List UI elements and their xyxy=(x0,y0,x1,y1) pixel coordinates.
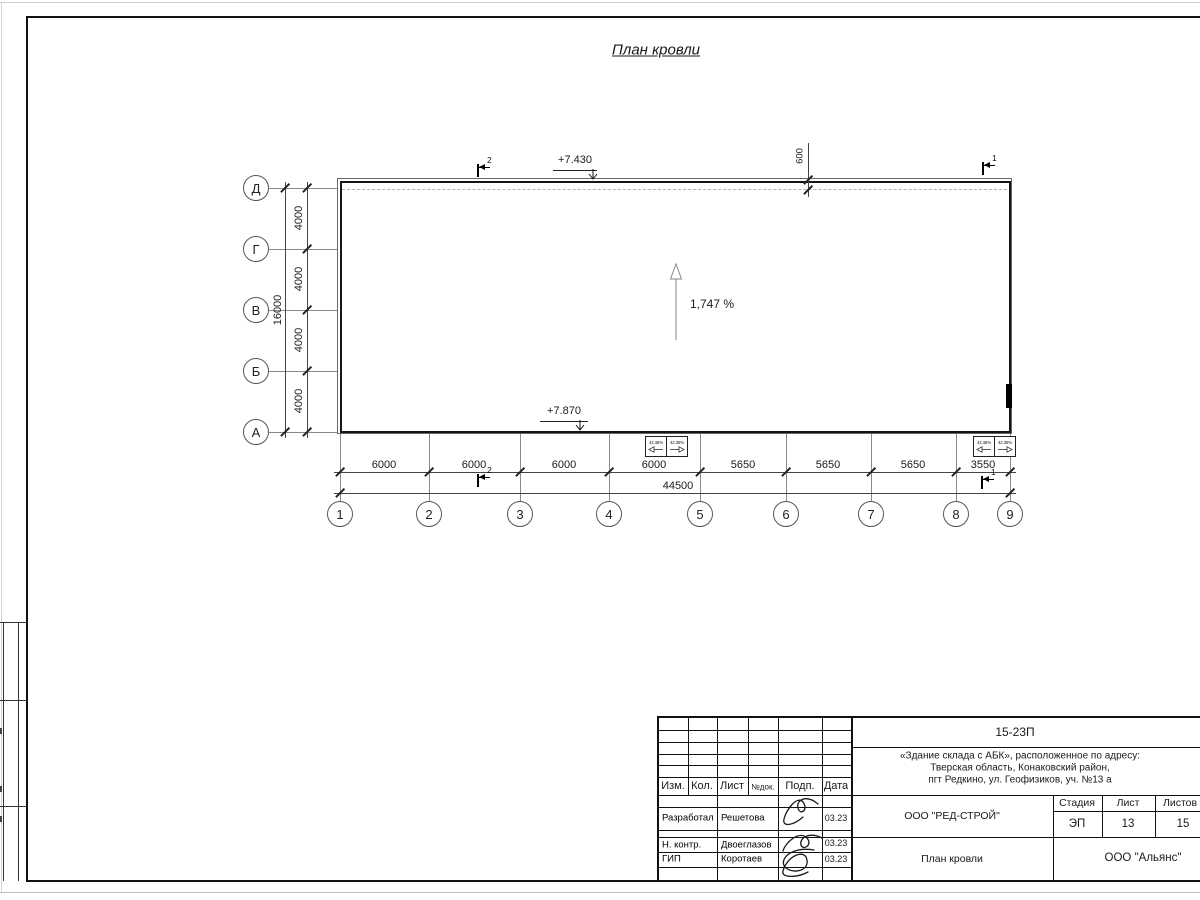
axis-label: 8 xyxy=(952,507,959,522)
axis-bubble-col: 4 xyxy=(596,501,622,527)
drain-arrow-left-icon xyxy=(976,446,992,453)
axis-label: 7 xyxy=(867,507,874,522)
axis-label: Г xyxy=(252,242,259,257)
axis-grid-line xyxy=(429,434,430,501)
drain-cell: 42.38% xyxy=(667,437,687,456)
section-arrow-icon xyxy=(479,474,485,480)
stamp-role: Н. контр. xyxy=(662,840,701,851)
axis-bubble-col: 5 xyxy=(687,501,713,527)
axis-label: Д xyxy=(252,181,261,196)
dimension-line xyxy=(334,493,1016,494)
elevation-value: +7.430 xyxy=(558,154,592,166)
ladder-mark xyxy=(1006,384,1012,408)
axis-label: 2 xyxy=(425,507,432,522)
section-arrow-icon xyxy=(983,476,989,482)
axis-label: 3 xyxy=(516,507,523,522)
stamp-line xyxy=(659,742,851,743)
stamp-name: Решетова xyxy=(721,813,765,824)
stamp-stage-value: ЭП xyxy=(1069,818,1086,830)
axis-label: 4 xyxy=(605,507,612,522)
drain-arrow-right-icon xyxy=(997,446,1013,453)
frame-bottom xyxy=(26,880,1200,882)
stamp-address-line: пгт Редкино, ул. Геофизиков, уч. №13 а xyxy=(928,775,1111,786)
axis-bubble-row: Б xyxy=(243,358,269,384)
sheet-edge-bottom xyxy=(0,892,1200,893)
drain-box: 42.38% 42.38% xyxy=(645,436,688,457)
axis-label: 1 xyxy=(336,507,343,522)
stamp-listov-value: 15 xyxy=(1177,818,1190,830)
axis-bubble-col: 1 xyxy=(327,501,353,527)
stamp-line xyxy=(659,777,851,778)
stamp-date: 03.23 xyxy=(825,813,848,823)
stamp-line xyxy=(1102,795,1103,837)
drain-arrow-left-icon xyxy=(648,446,664,453)
stamp-line xyxy=(659,730,851,731)
axis-label: Б xyxy=(252,364,261,379)
elevation-arrow-icon xyxy=(574,420,586,431)
section-mark: 2 xyxy=(477,158,497,180)
stamp-col-ndok: №док. xyxy=(751,783,774,792)
stamp-col-izm: Изм. xyxy=(661,780,685,792)
drain-cell: 42.38% xyxy=(995,437,1015,456)
margin-row-line xyxy=(0,622,27,623)
section-number: 2 xyxy=(487,155,492,165)
dimension-label: 16000 xyxy=(272,295,284,326)
margin-column-line xyxy=(18,622,19,881)
stamp-col-data: Дата xyxy=(824,780,848,792)
slope-label: 1,747 % xyxy=(690,297,734,311)
drawing-title: План кровли xyxy=(612,42,700,59)
axis-bubble-row: А xyxy=(243,419,269,445)
frame-left xyxy=(26,16,28,882)
stamp-role: ГИП xyxy=(662,854,681,865)
dimension-label: 4000 xyxy=(293,206,305,230)
axis-grid-line xyxy=(520,434,521,501)
section-mark: 2 xyxy=(477,468,497,490)
stamp-line xyxy=(659,795,1200,796)
axis-grid-line xyxy=(871,434,872,501)
dimension-line xyxy=(285,182,286,438)
stamp-list-label: Лист xyxy=(1117,797,1140,809)
stamp-col-kol: Кол. xyxy=(691,780,713,792)
stamp-listov-label: Листов xyxy=(1163,797,1197,809)
stamp-doc-number: 15-23П xyxy=(995,725,1034,739)
axis-bubble-row: В xyxy=(243,297,269,323)
axis-grid-line xyxy=(786,434,787,501)
stamp-org: ООО "РЕД-СТРОЙ" xyxy=(904,810,1000,822)
parapet-dashed-line xyxy=(342,189,1007,190)
axis-bubble-col: 8 xyxy=(943,501,969,527)
margin-column-line xyxy=(3,622,4,881)
drain-cell: 42.38% xyxy=(646,437,667,456)
stamp-line xyxy=(1155,795,1156,837)
signature xyxy=(772,830,830,880)
section-mark: 1 xyxy=(982,156,1002,178)
dimension-label: 5650 xyxy=(901,459,925,471)
elevation-value: +7.870 xyxy=(547,405,581,417)
axis-grid-line xyxy=(609,434,610,501)
axis-bubble-row: Д xyxy=(243,175,269,201)
margin-row-line xyxy=(0,700,27,701)
axis-grid-line xyxy=(956,434,957,501)
axis-bubble-col: 2 xyxy=(416,501,442,527)
sheet-edge-left xyxy=(1,2,2,892)
stamp-line xyxy=(852,747,1200,748)
axis-bubble-col: 6 xyxy=(773,501,799,527)
stamp-address-line: «Здание склада с АБК», расположенное по … xyxy=(900,751,1140,762)
stamp-border xyxy=(851,718,853,880)
section-number: 1 xyxy=(992,153,997,163)
axis-label: 5 xyxy=(696,507,703,522)
signature xyxy=(776,792,824,832)
dimension-label: 44500 xyxy=(663,480,694,492)
stamp-border xyxy=(657,716,1200,718)
axis-bubble-col: 9 xyxy=(997,501,1023,527)
margin-text-fragment xyxy=(0,816,2,822)
dimension-label: 600 xyxy=(795,148,806,164)
dimension-label: 4000 xyxy=(293,267,305,291)
elevation-arrow-icon xyxy=(587,169,599,180)
axis-label: 9 xyxy=(1006,507,1013,522)
drain-cell: 42.38% xyxy=(974,437,995,456)
frame-top xyxy=(26,16,1200,18)
section-number: 2 xyxy=(487,465,492,475)
dimension-label: 6000 xyxy=(552,459,576,471)
section-arrow-icon xyxy=(984,162,990,168)
margin-text-fragment xyxy=(0,728,2,734)
stamp-col-list: Лист xyxy=(720,780,744,792)
dimension-label: 5650 xyxy=(816,459,840,471)
sheet-edge-top xyxy=(0,2,1200,3)
margin-text-fragment xyxy=(0,786,2,792)
drawing-sheet: { "sheet": { "title": "План кровли" }, "… xyxy=(0,0,1200,900)
slope-arrow-icon xyxy=(666,262,686,342)
drain-arrow-right-icon xyxy=(669,446,685,453)
stamp-name: Коротаев xyxy=(721,854,762,865)
axis-label: В xyxy=(252,303,261,318)
stamp-list-value: 13 xyxy=(1122,818,1135,830)
dimension-label: 4000 xyxy=(293,328,305,352)
stamp-border xyxy=(657,716,659,882)
section-mark: 1 xyxy=(981,470,1001,492)
margin-row-line xyxy=(0,806,27,807)
stamp-contractor: ООО "Альянс" xyxy=(1105,852,1182,864)
dimension-label: 4000 xyxy=(293,389,305,413)
dimension-label: 5650 xyxy=(731,459,755,471)
stamp-stage-label: Стадия xyxy=(1059,797,1095,809)
axis-label: 6 xyxy=(782,507,789,522)
dimension-line xyxy=(334,472,1016,473)
drain-box: 42.38% 42.38% xyxy=(973,436,1016,457)
dimension-label: 6000 xyxy=(372,459,396,471)
stamp-role: Разработал xyxy=(662,813,714,824)
section-arrow-icon xyxy=(479,164,485,170)
axis-bubble-col: 7 xyxy=(858,501,884,527)
axis-grid-line xyxy=(700,434,701,501)
axis-bubble-row: Г xyxy=(243,236,269,262)
axis-label: А xyxy=(252,425,261,440)
section-number: 1 xyxy=(991,467,996,477)
stamp-col-podp: Подп. xyxy=(785,780,814,792)
stamp-line xyxy=(659,765,851,766)
stamp-line xyxy=(1053,811,1200,812)
stamp-line xyxy=(852,837,1200,838)
axis-bubble-col: 3 xyxy=(507,501,533,527)
stamp-sheet-title: План кровли xyxy=(921,853,983,865)
stamp-address-line: Тверская область, Конаковский район, xyxy=(930,763,1110,774)
stamp-name: Двоеглазов xyxy=(721,840,772,851)
dimension-label: 6000 xyxy=(642,459,666,471)
stamp-line xyxy=(659,754,851,755)
